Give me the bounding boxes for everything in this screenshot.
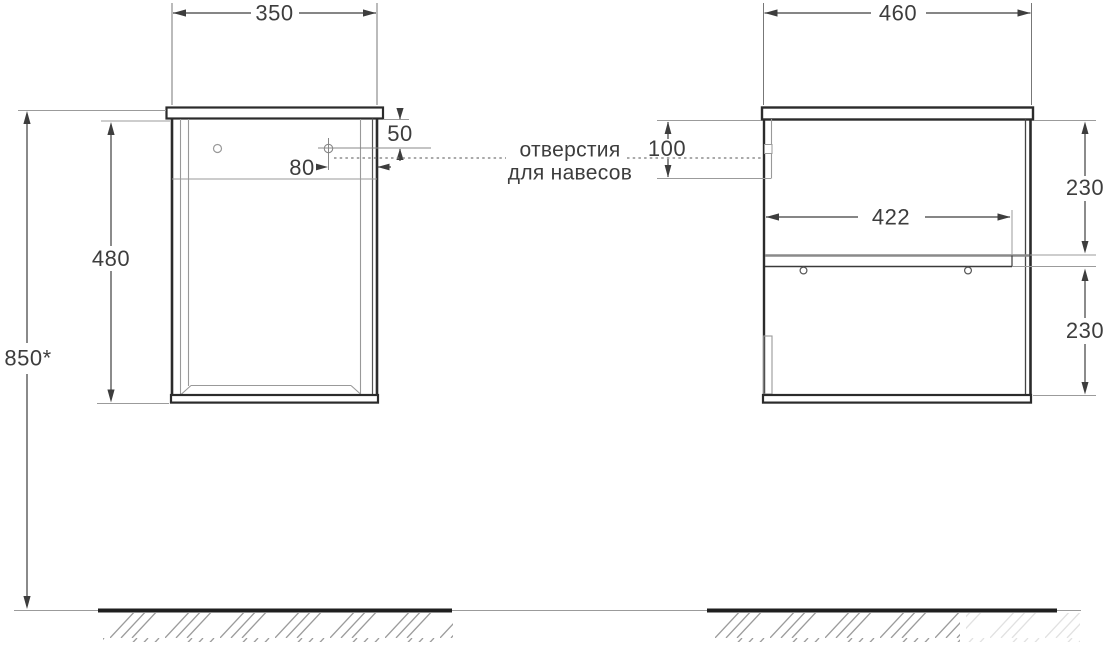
dimension-mount-height: 850* bbox=[4, 111, 166, 610]
screw-hole-marker bbox=[214, 145, 222, 153]
side-view-cabinet bbox=[167, 108, 432, 403]
arrow-right bbox=[1018, 9, 1031, 16]
mount-height-label: 850* bbox=[4, 346, 51, 371]
hanger-offset-label: 100 bbox=[648, 136, 686, 161]
arrow-left bbox=[765, 9, 778, 16]
technical-drawing-page: 350 460 850* 480 50 bbox=[0, 0, 1104, 648]
ground-hatch-left bbox=[103, 613, 453, 642]
arrow-up bbox=[23, 111, 30, 124]
arrow-left bbox=[173, 9, 186, 16]
side-perspective-diagonal-left bbox=[181, 386, 191, 395]
ground-hatch-faint bbox=[966, 613, 1080, 642]
shelf-pin-right bbox=[965, 267, 972, 274]
arrow-up bbox=[107, 122, 114, 135]
arrow-down bbox=[23, 596, 30, 609]
front-width-label: 460 bbox=[879, 1, 917, 26]
side-bottom-panel bbox=[171, 395, 378, 403]
annotation-line1: отверстия bbox=[519, 139, 620, 162]
hole-side-offset-label: 80 bbox=[289, 155, 314, 180]
annotation-line2: для навесов bbox=[508, 162, 632, 185]
front-view-cabinet bbox=[762, 108, 1033, 404]
ground bbox=[14, 611, 1081, 643]
lower-section-label: 230 bbox=[1066, 318, 1104, 343]
arrow-down bbox=[396, 108, 403, 120]
dimension-hanger-offset: 100 bbox=[648, 121, 771, 179]
dimension-hole-top-offset: 50 bbox=[383, 108, 413, 161]
ground-hatch-right bbox=[712, 613, 960, 642]
arrow-up bbox=[1082, 269, 1089, 282]
hanger-hole-marker bbox=[318, 138, 431, 170]
arrow-right bbox=[316, 164, 328, 171]
dimension-shelf-width: 422 bbox=[766, 205, 1012, 256]
dimension-body-height: 480 bbox=[92, 121, 170, 404]
shelf-pin-left bbox=[800, 267, 807, 274]
front-top-panel bbox=[762, 108, 1033, 120]
arrow-left bbox=[766, 213, 779, 220]
body-height-label: 480 bbox=[92, 246, 130, 271]
dimension-upper-section: 230 bbox=[1030, 121, 1104, 256]
cabinet-dimension-drawing: 350 460 850* 480 50 bbox=[0, 0, 1104, 648]
arrow-down bbox=[107, 390, 114, 403]
shelf-width-label: 422 bbox=[872, 205, 910, 230]
dimension-front-width: 460 bbox=[764, 1, 1032, 106]
arrow-up bbox=[665, 122, 672, 135]
arrow-left bbox=[378, 164, 390, 171]
upper-section-label: 230 bbox=[1066, 175, 1104, 200]
side-perspective-diagonal-right bbox=[351, 386, 361, 395]
arrow-down bbox=[665, 165, 672, 178]
dimension-side-width: 350 bbox=[172, 1, 377, 106]
side-width-label: 350 bbox=[255, 1, 293, 26]
front-bottom-panel bbox=[763, 395, 1031, 403]
hole-top-offset-label: 50 bbox=[387, 121, 412, 146]
side-top-panel bbox=[167, 108, 384, 119]
arrow-right bbox=[998, 213, 1011, 220]
hanger-bracket bbox=[765, 145, 773, 154]
arrow-up bbox=[1082, 122, 1089, 135]
arrow-down bbox=[1082, 382, 1089, 395]
arrow-right bbox=[363, 9, 376, 16]
arrow-down bbox=[1082, 241, 1089, 254]
